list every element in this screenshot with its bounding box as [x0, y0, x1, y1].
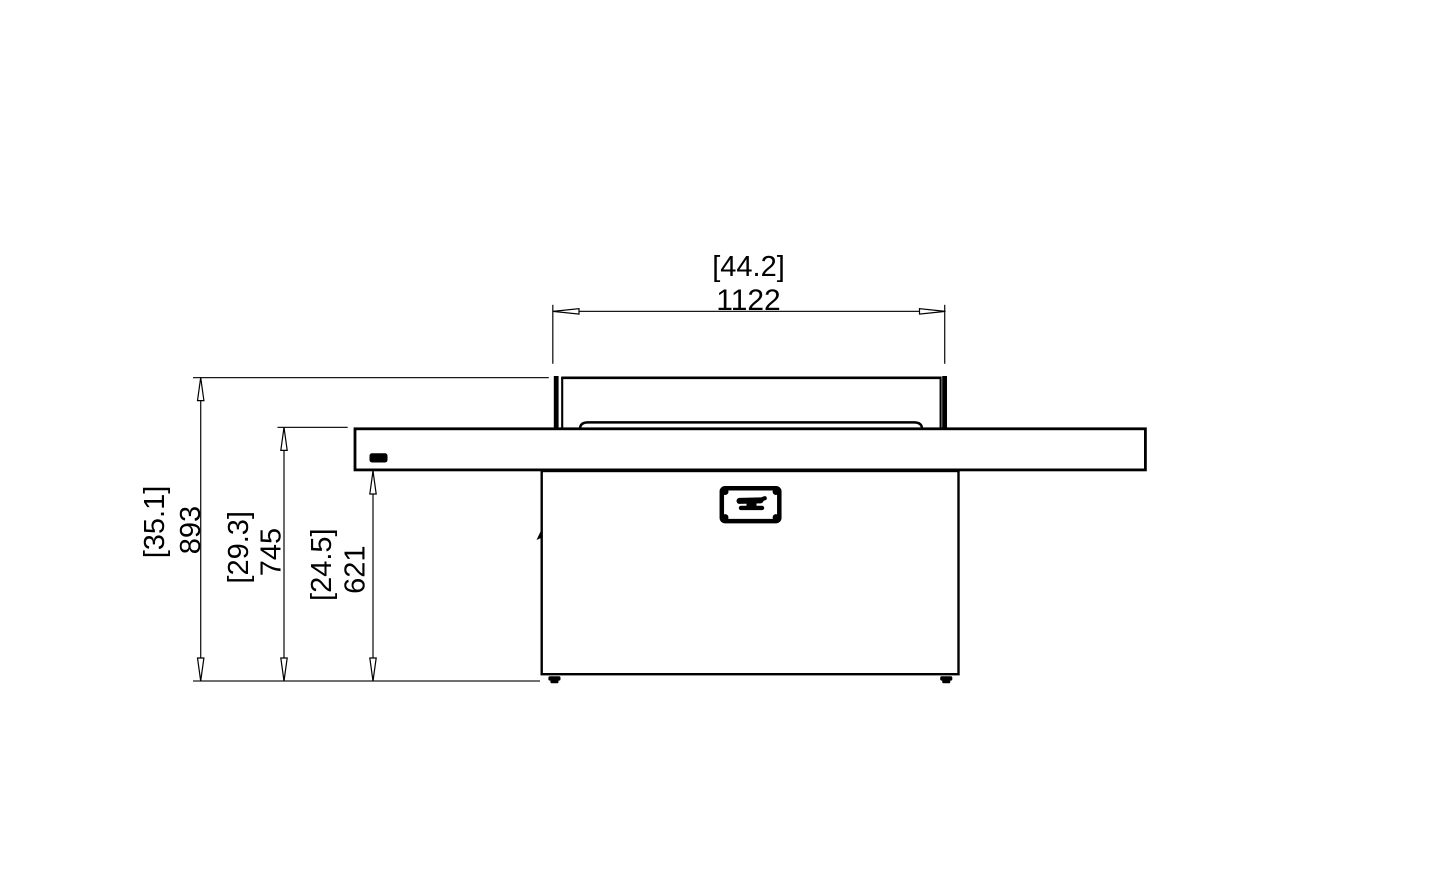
- svg-text:745: 745: [256, 528, 288, 576]
- svg-text:[29.3]: [29.3]: [223, 511, 255, 584]
- svg-text:[44.2]: [44.2]: [712, 251, 785, 283]
- svg-text:[24.5]: [24.5]: [306, 528, 338, 601]
- svg-text:[35.1]: [35.1]: [139, 486, 171, 559]
- svg-text:621: 621: [339, 546, 371, 594]
- svg-text:893: 893: [175, 506, 207, 554]
